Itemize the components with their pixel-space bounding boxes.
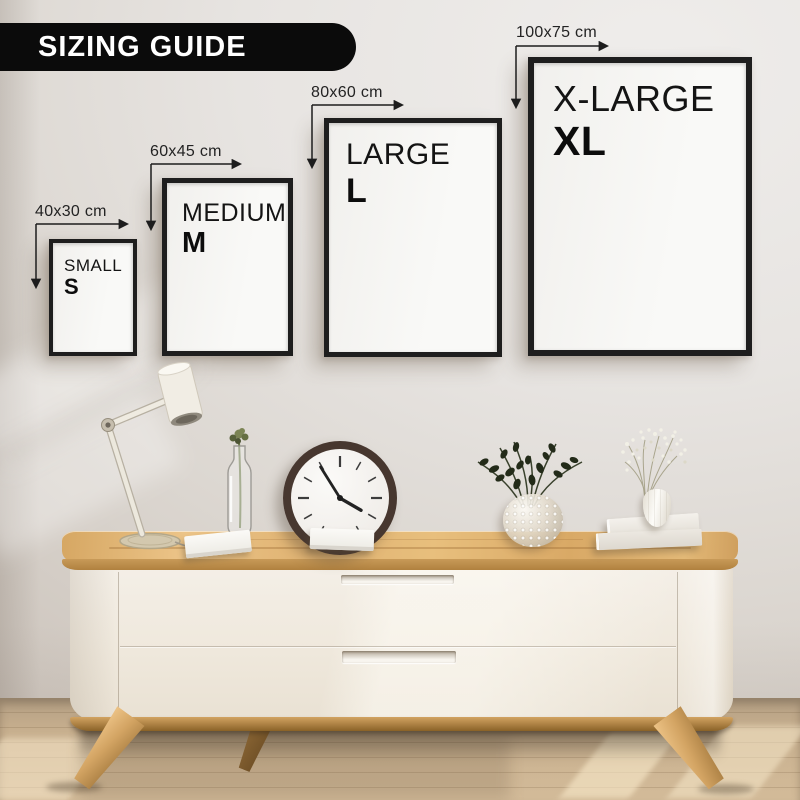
tabletop-front-edge xyxy=(62,559,738,570)
panel-seam-right xyxy=(677,572,678,718)
notebook xyxy=(310,528,375,551)
stem-in-glass-bottle xyxy=(219,424,259,539)
banner-title: SIZING GUIDE xyxy=(38,31,247,64)
drawer-divider xyxy=(120,646,676,647)
frame-small: SMALL S xyxy=(49,239,137,356)
sunbeam-on-cabinet xyxy=(70,566,733,722)
frame-small-label: SMALL S xyxy=(64,256,122,300)
sideboard-bottom-trim xyxy=(70,717,733,731)
frame-medium-label: MEDIUM M xyxy=(182,199,286,259)
frame-medium-name: MEDIUM xyxy=(182,199,286,227)
frame-large-name: LARGE xyxy=(346,138,450,172)
bubble-glass-vase xyxy=(503,494,563,547)
frame-medium-letter: M xyxy=(182,227,286,259)
frame-large-label: LARGE L xyxy=(346,138,450,210)
dimension-label-small: 40x30 cm xyxy=(35,203,107,221)
dimension-label-large: 80x60 cm xyxy=(311,84,383,102)
frame-small-letter: S xyxy=(64,275,122,300)
flower-bud xyxy=(230,428,249,444)
lamp-head xyxy=(156,360,204,429)
frame-medium: MEDIUM M xyxy=(162,178,293,356)
sizing-guide-banner: SIZING GUIDE xyxy=(0,23,356,71)
panel-seam-left xyxy=(118,572,119,718)
frame-large-letter: L xyxy=(346,172,450,210)
dimension-label-xlarge: 100x75 cm xyxy=(516,24,597,42)
desk-lamp xyxy=(75,358,205,558)
frame-xlarge-name: X-LARGE xyxy=(553,79,715,119)
frame-small-name: SMALL xyxy=(64,256,122,275)
frame-xlarge-letter: XL xyxy=(553,119,715,165)
dimension-label-medium: 60x45 cm xyxy=(150,143,222,161)
sideboard-body xyxy=(70,566,733,722)
sizing-guide-scene: SIZING GUIDE SMALL S MEDIUM M LARGE L X-… xyxy=(0,0,800,800)
drawer-handle-upper xyxy=(341,575,454,584)
frame-xlarge-label: X-LARGE XL xyxy=(553,79,715,165)
drawer-handle-lower xyxy=(342,651,456,663)
frame-large: LARGE L xyxy=(324,118,502,357)
frame-xlarge: X-LARGE XL xyxy=(528,57,752,356)
